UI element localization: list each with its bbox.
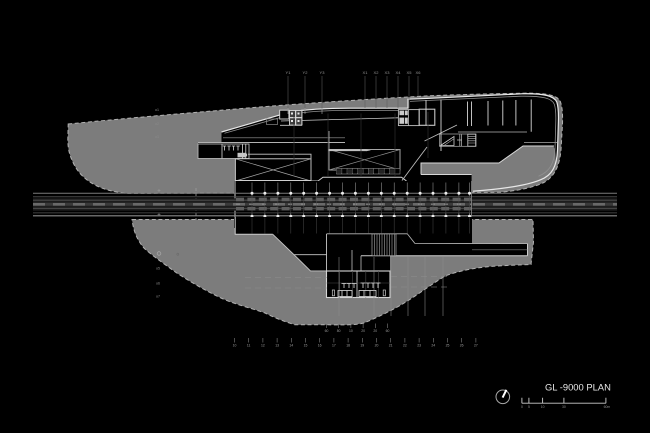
svg-text:10: 10 <box>541 405 545 409</box>
svg-text:60: 60 <box>325 329 329 333</box>
svg-text:Y1: Y1 <box>286 70 292 75</box>
svg-text:Y2: Y2 <box>303 70 309 75</box>
svg-text:60m: 60m <box>604 405 611 409</box>
svg-text:18: 18 <box>346 344 350 348</box>
svg-text:o3: o3 <box>155 135 159 139</box>
svg-text:16: 16 <box>318 344 322 348</box>
svg-text:27: 27 <box>474 344 478 348</box>
svg-text:60: 60 <box>386 329 390 333</box>
svg-text:GL -9000 PLAN: GL -9000 PLAN <box>545 382 611 393</box>
svg-text:11: 11 <box>247 344 251 348</box>
svg-text:X5: X5 <box>407 70 413 75</box>
svg-text:o7: o7 <box>156 295 160 299</box>
svg-text:19: 19 <box>360 344 364 348</box>
svg-text:14: 14 <box>289 344 293 348</box>
svg-text:o1: o1 <box>155 108 159 112</box>
svg-text:20: 20 <box>375 344 379 348</box>
svg-text:26: 26 <box>460 344 464 348</box>
svg-text:12: 12 <box>261 344 265 348</box>
svg-text:20: 20 <box>361 329 365 333</box>
svg-text:Y3: Y3 <box>320 70 326 75</box>
svg-text:X6: X6 <box>416 70 422 75</box>
svg-text:23: 23 <box>417 344 421 348</box>
svg-text:80: 80 <box>337 329 341 333</box>
svg-text:13: 13 <box>275 344 279 348</box>
svg-text:X2: X2 <box>374 70 380 75</box>
svg-text:o2: o2 <box>155 122 159 126</box>
svg-text:24: 24 <box>431 344 435 348</box>
svg-text:30: 30 <box>562 405 566 409</box>
svg-text:17: 17 <box>332 344 336 348</box>
svg-text:o5: o5 <box>156 267 160 271</box>
svg-text:o6: o6 <box>156 282 160 286</box>
svg-text:22: 22 <box>403 344 407 348</box>
svg-text:10: 10 <box>233 344 237 348</box>
svg-text:X4: X4 <box>396 70 402 75</box>
svg-text:X1: X1 <box>363 70 369 75</box>
svg-text:X3: X3 <box>385 70 391 75</box>
svg-text:20: 20 <box>373 329 377 333</box>
svg-text:5: 5 <box>528 405 530 409</box>
svg-text:21: 21 <box>389 344 393 348</box>
svg-text:15: 15 <box>304 344 308 348</box>
svg-text:10: 10 <box>349 329 353 333</box>
svg-text:0: 0 <box>521 405 523 409</box>
svg-text:25: 25 <box>446 344 450 348</box>
